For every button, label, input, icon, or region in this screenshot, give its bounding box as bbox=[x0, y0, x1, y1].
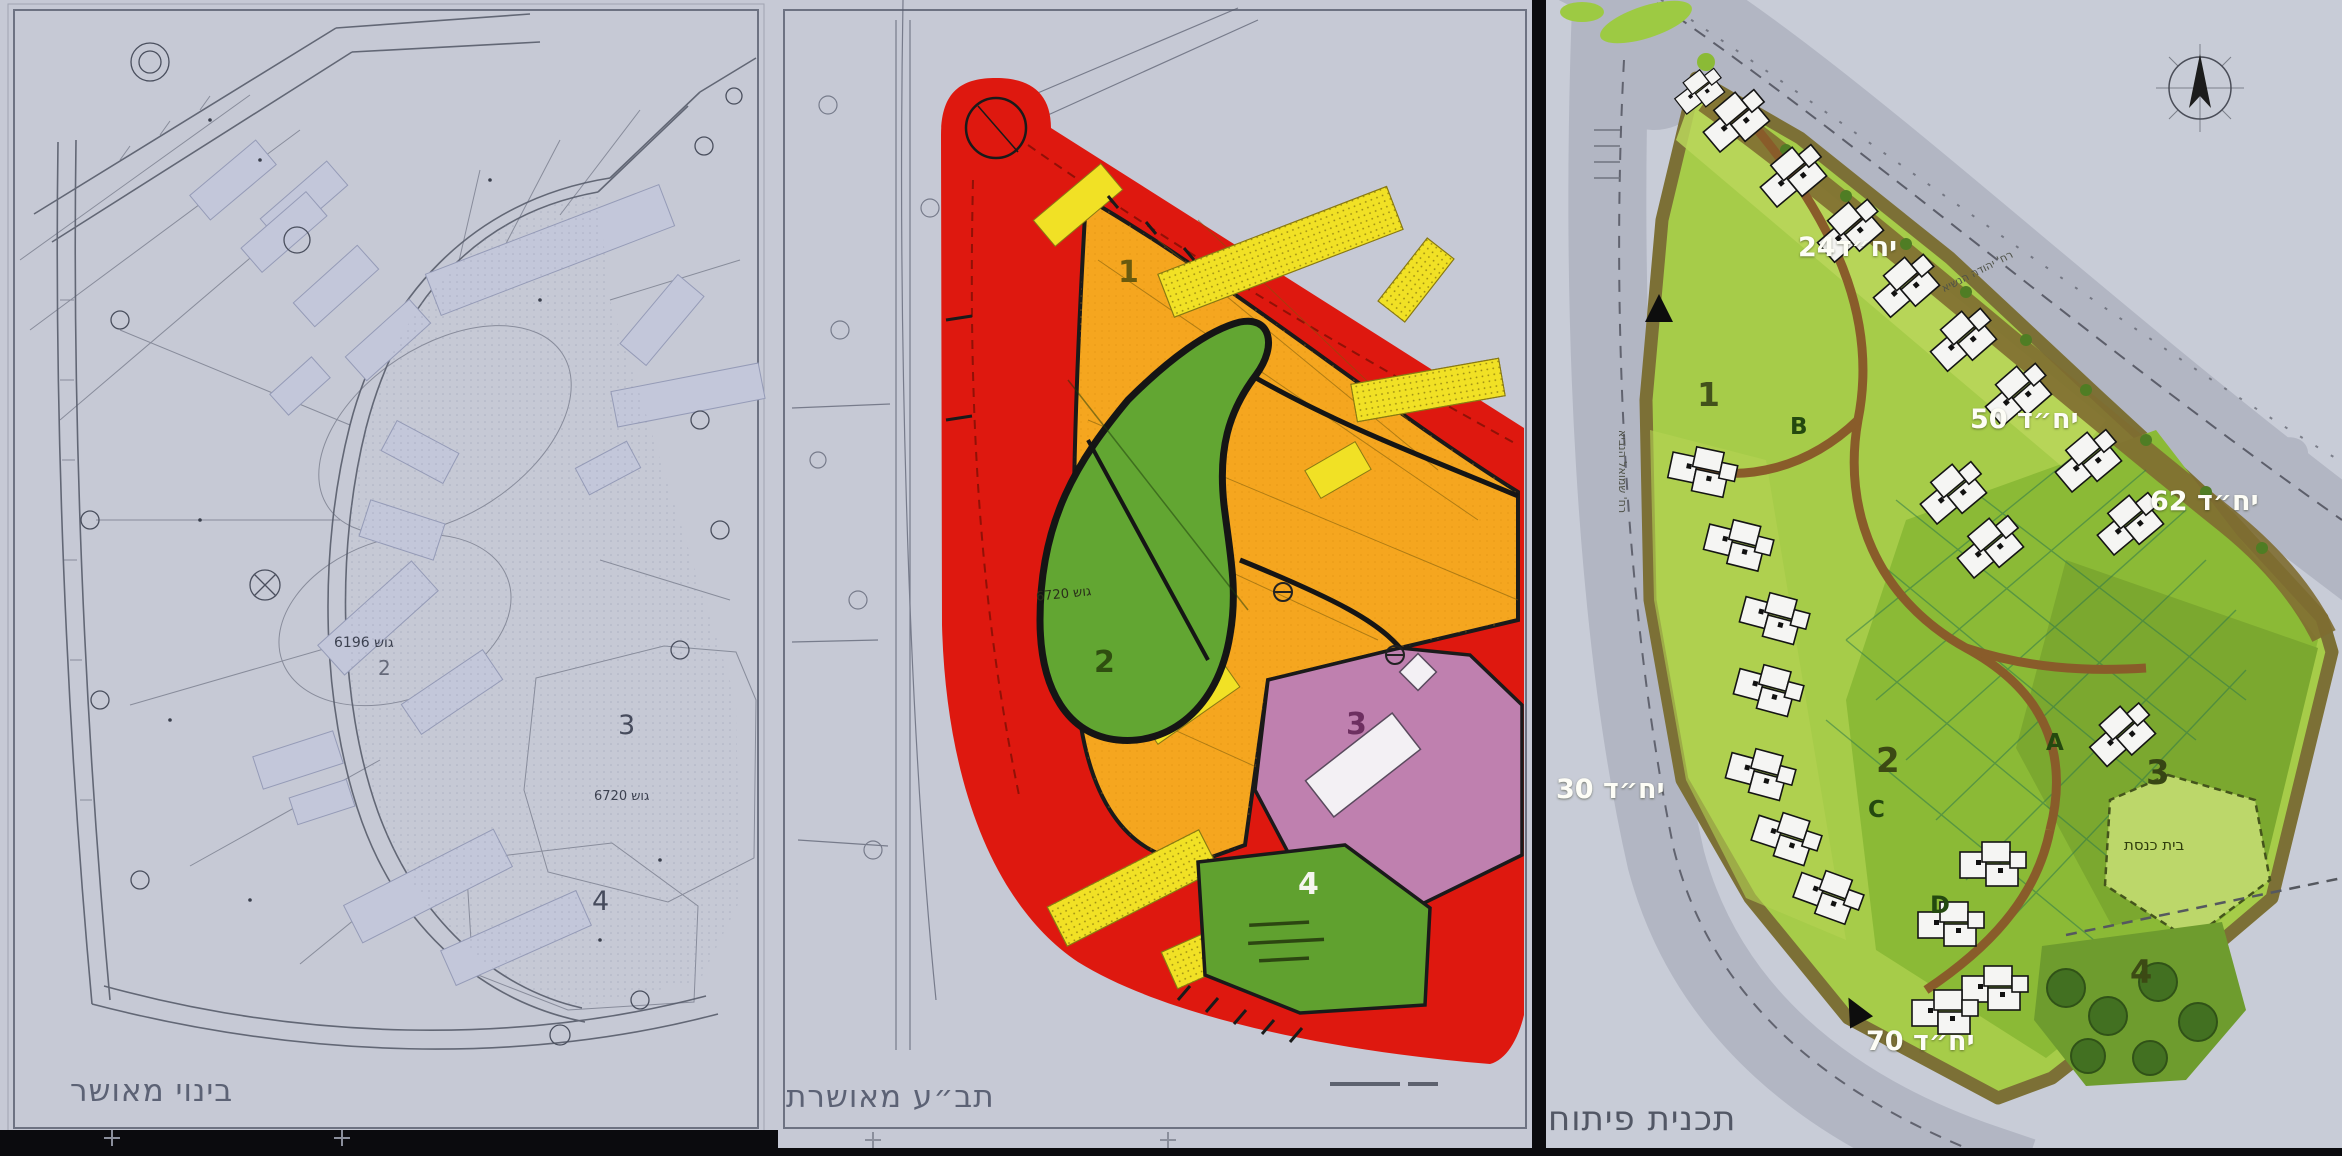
bottom-black-strip bbox=[778, 1148, 1532, 1156]
plan-number-dashes bbox=[1330, 1082, 1438, 1086]
panel-divider bbox=[1532, 0, 1546, 1156]
panel-approved-construction bbox=[0, 0, 778, 1156]
panel-development-plan bbox=[1546, 0, 2342, 1156]
middle-panel-map bbox=[778, 0, 1532, 1156]
right-panel-map bbox=[1546, 0, 2342, 1156]
bottom-black-strip bbox=[1546, 1148, 2342, 1156]
left-panel-map bbox=[0, 0, 778, 1156]
bottom-black-strip bbox=[0, 1130, 778, 1156]
panel-approved-zoning bbox=[778, 0, 1532, 1156]
north-compass-icon bbox=[2156, 44, 2244, 132]
planning-maps-screenshot: בינוי מאושר 3 4 2 גוש 6196 גוש 6720 תב״ע… bbox=[0, 0, 2342, 1156]
